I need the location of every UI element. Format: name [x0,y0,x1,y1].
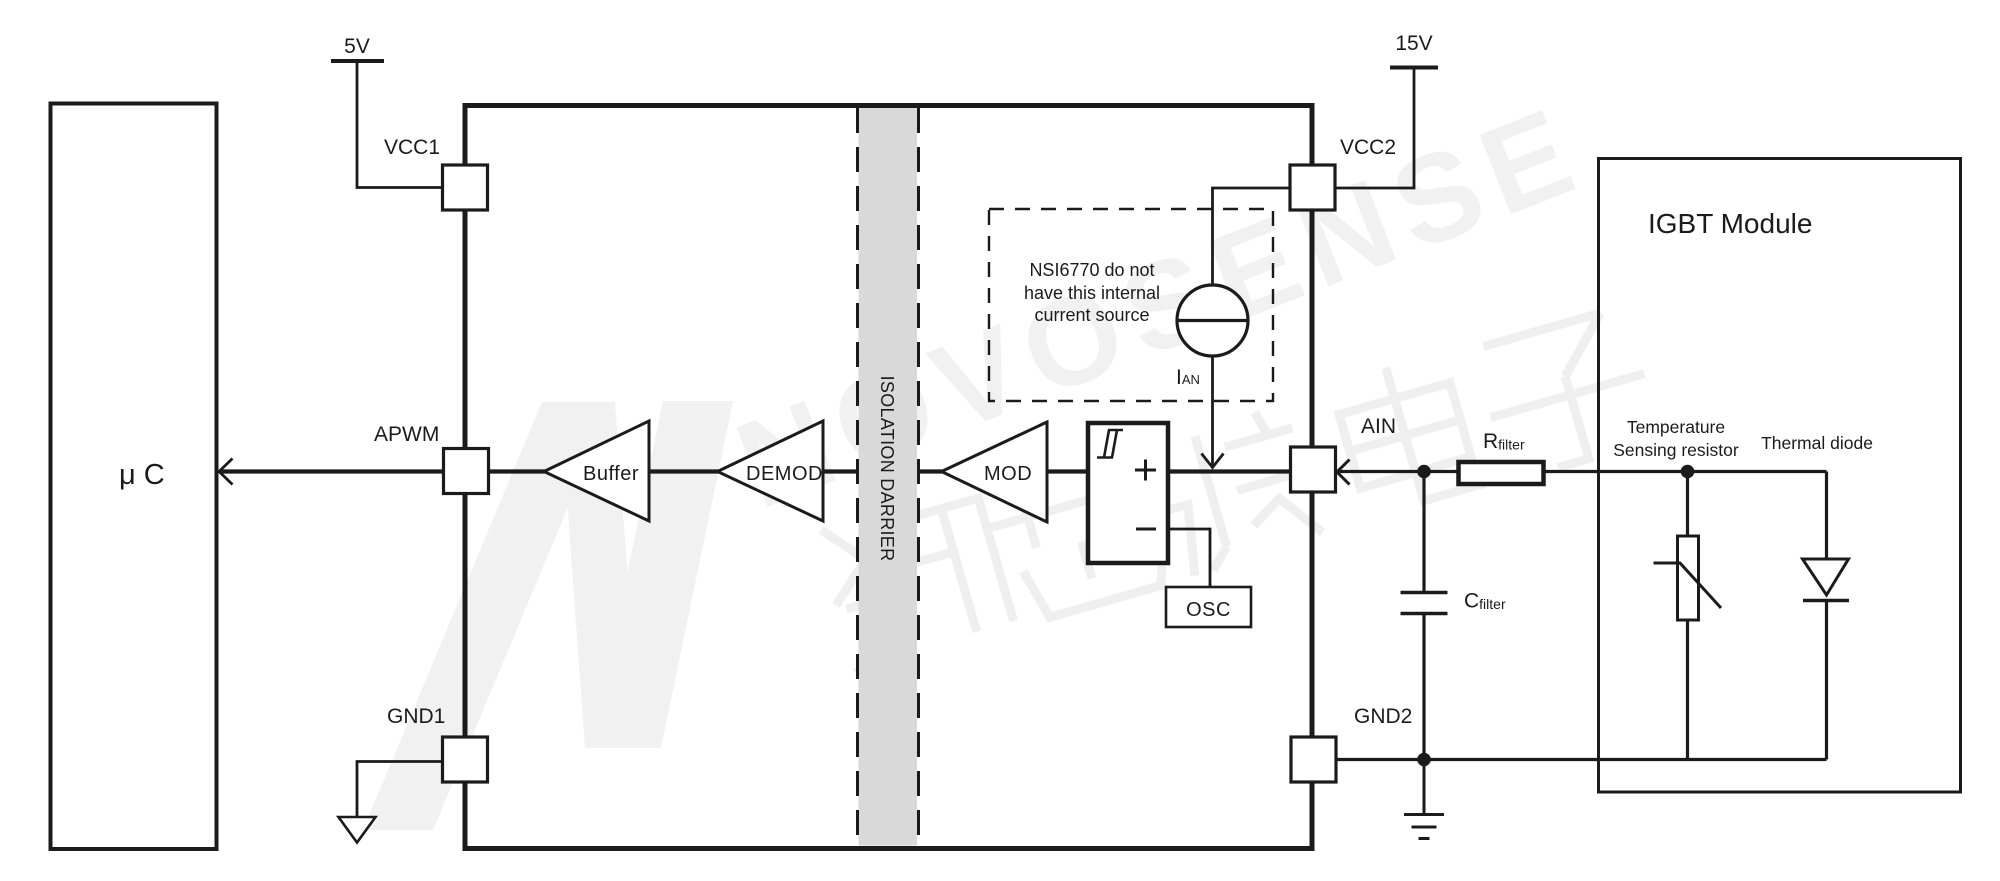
svg-text:15V: 15V [1395,32,1432,55]
svg-text:Thermal diode: Thermal diode [1761,433,1873,453]
svg-text:VCC2: VCC2 [1340,136,1396,159]
svg-text:Buffer: Buffer [583,463,639,485]
svg-text:ISOLATION DARRIER: ISOLATION DARRIER [877,376,897,562]
svg-text:Temperature: Temperature [1627,417,1725,437]
svg-text:AIN: AIN [1361,415,1396,438]
svg-text:APWM: APWM [374,423,439,446]
svg-text:have this internal: have this internal [1024,283,1160,303]
svg-text:OSC: OSC [1186,599,1231,621]
svg-text:Sensing resistor: Sensing resistor [1613,440,1739,460]
svg-text:DEMOD: DEMOD [746,463,823,485]
svg-text:VCC1: VCC1 [384,136,440,159]
svg-text:μ C: μ C [119,459,165,491]
svg-text:current source: current source [1034,305,1149,325]
svg-text:NSI6770 do not: NSI6770 do not [1029,260,1154,280]
svg-text:IGBT Module: IGBT Module [1648,208,1812,239]
svg-text:5V: 5V [344,35,370,58]
svg-text:GND1: GND1 [387,705,445,728]
svg-text:GND2: GND2 [1354,705,1412,728]
svg-text:MOD: MOD [984,463,1032,485]
